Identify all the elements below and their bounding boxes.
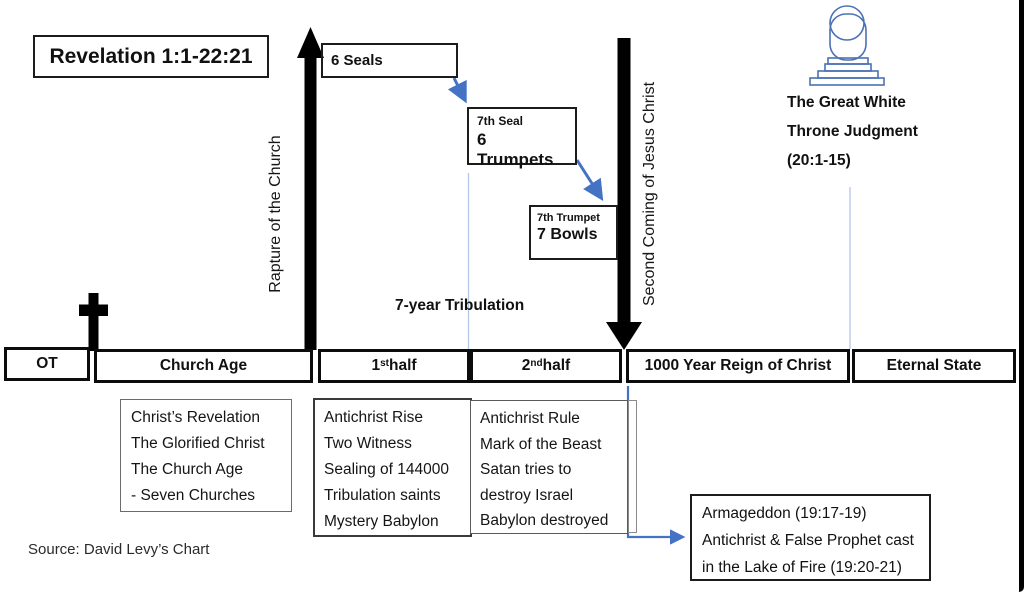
segment-label: 1 bbox=[371, 357, 380, 375]
empty-narrow-box bbox=[628, 400, 637, 533]
revelation-timeline-diagram: Revelation 1:1-22:21 6 Seals 7th Seal 6 … bbox=[0, 0, 1024, 592]
detail-line: Antichrist & False Prophet cast bbox=[702, 527, 919, 554]
seventh-seal-box: 7th Seal 6 Trumpets bbox=[467, 107, 577, 165]
detail-line: Antichrist Rise bbox=[324, 405, 461, 431]
detail-line: Two Witness bbox=[324, 431, 461, 457]
segment-label-rest: half bbox=[389, 357, 417, 375]
segment-superscript: st bbox=[380, 359, 389, 369]
six-trumpets-label: 6 Trumpets bbox=[477, 130, 567, 170]
detail-line: Antichrist Rule bbox=[480, 406, 618, 432]
seals-to-trumpets-arrow bbox=[454, 78, 464, 98]
detail-line: in the Lake of Fire (19:20-21) bbox=[702, 554, 919, 581]
throne-caption-line3: (20:1-15) bbox=[787, 146, 957, 175]
diagram-title: Revelation 1:1-22:21 bbox=[33, 35, 269, 78]
timeline-segment-church-age: Church Age bbox=[94, 349, 313, 383]
tribulation-heading: 7-year Tribulation bbox=[395, 297, 555, 315]
segment-superscript: nd bbox=[530, 359, 542, 369]
second-half-detail-box: Antichrist Rule Mark of the Beast Satan … bbox=[470, 400, 628, 534]
detail-line: The Church Age bbox=[131, 457, 281, 483]
timeline-segment-millennium: 1000 Year Reign of Christ bbox=[626, 349, 850, 383]
detail-line: Satan tries to bbox=[480, 457, 618, 483]
seventh-seal-label: 7th Seal bbox=[477, 114, 567, 128]
rapture-label: Rapture of the Church bbox=[267, 135, 285, 292]
detail-line: The Glorified Christ bbox=[131, 431, 281, 457]
throne-caption-line1: The Great White bbox=[787, 88, 957, 117]
first-half-detail-box: Antichrist Rise Two Witness Sealing of 1… bbox=[313, 398, 472, 537]
diagram-title-text: Revelation 1:1-22:21 bbox=[49, 45, 252, 69]
detail-line: Mark of the Beast bbox=[480, 432, 618, 458]
seventh-trumpet-label: 7th Trumpet bbox=[537, 212, 610, 224]
detail-line: Armageddon (19:17-19) bbox=[702, 500, 919, 527]
six-seals-label: 6 Seals bbox=[331, 52, 383, 69]
detail-line: Christ’s Revelation bbox=[131, 405, 281, 431]
segment-label: Church Age bbox=[160, 357, 247, 375]
seventh-trumpet-box: 7th Trumpet 7 Bowls bbox=[529, 205, 618, 260]
throne-icon bbox=[810, 6, 884, 85]
detail-line: destroy Israel bbox=[480, 483, 618, 509]
trumpets-to-bowls-arrow bbox=[577, 160, 600, 196]
detail-line: Mystery Babylon bbox=[324, 509, 461, 535]
detail-line: - Seven Churches bbox=[131, 483, 281, 509]
second-coming-label: Second Coming of Jesus Christ bbox=[641, 82, 659, 306]
throne-caption-line2: Throne Judgment bbox=[787, 117, 957, 146]
detail-line: Babylon destroyed bbox=[480, 508, 618, 534]
segment-label: Eternal State bbox=[887, 357, 982, 375]
timeline-segment-second-half: 2nd half bbox=[470, 349, 622, 383]
timeline-segment-eternal-state: Eternal State bbox=[852, 349, 1016, 383]
detail-line: Sealing of 144000 bbox=[324, 457, 461, 483]
cross-icon bbox=[79, 293, 108, 351]
timeline-segment-ot: OT bbox=[4, 347, 90, 381]
timeline-segment-first-half: 1st half bbox=[318, 349, 470, 383]
segment-label-rest: half bbox=[543, 357, 571, 375]
seven-bowls-label: 7 Bowls bbox=[537, 226, 610, 244]
source-note: Source: David Levy’s Chart bbox=[28, 541, 209, 558]
six-seals-box: 6 Seals bbox=[321, 43, 458, 78]
detail-line: Tribulation saints bbox=[324, 483, 461, 509]
throne-judgment-caption: The Great White Throne Judgment (20:1-15… bbox=[787, 88, 957, 175]
segment-label: OT bbox=[36, 355, 58, 373]
second-coming-down-arrow bbox=[606, 38, 642, 350]
armageddon-detail-box: Armageddon (19:17-19) Antichrist & False… bbox=[690, 494, 931, 581]
church-age-detail-box: Christ’s Revelation The Glorified Christ… bbox=[120, 399, 292, 512]
segment-label: 1000 Year Reign of Christ bbox=[645, 357, 832, 375]
right-edge-frame bbox=[1019, 0, 1024, 592]
segment-label: 2 bbox=[522, 357, 531, 375]
rapture-up-arrow bbox=[297, 27, 324, 350]
